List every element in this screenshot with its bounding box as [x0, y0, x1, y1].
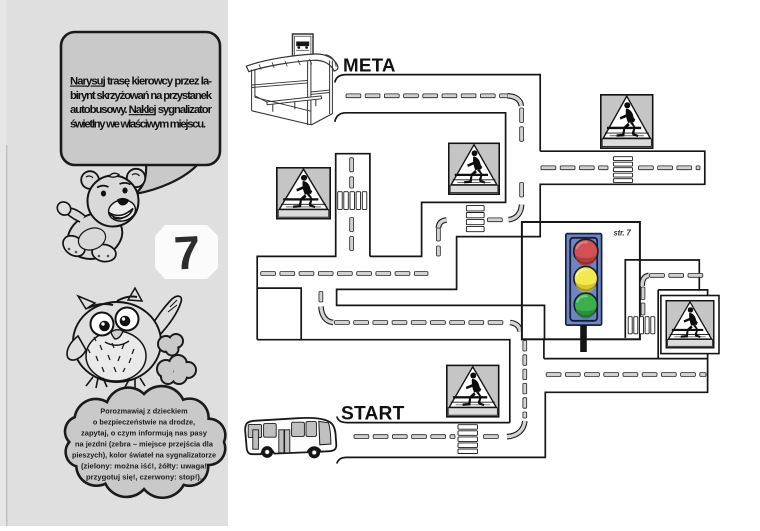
svg-text:birynt skrzyżowań na przystane: birynt skrzyżowań na przystanek — [70, 90, 213, 102]
svg-text:o bezpieczeństwie na drodze,: o bezpieczeństwie na drodze, — [93, 418, 195, 427]
svg-text:na jezdni (zebra – miejsce prz: na jezdni (zebra – miejsce przejścia dla — [75, 440, 214, 449]
svg-text:START: START — [341, 404, 405, 425]
svg-text:przygotuj się!, czerwony: stop: przygotuj się!, czerwony: stop!). — [86, 473, 202, 482]
svg-text:pieszych), kolor świateł na sy: pieszych), kolor świateł na sygnalizator… — [72, 451, 216, 460]
svg-text:7: 7 — [173, 225, 202, 279]
svg-text:świetlny we właściwym miejscu.: świetlny we właściwym miejscu. — [70, 118, 206, 130]
svg-text:zapytaj, o czym informują nas: zapytaj, o czym informują nas pasy — [81, 429, 208, 438]
svg-text:META: META — [343, 55, 396, 76]
svg-text:Porozmawiaj z dzieckiem: Porozmawiaj z dzieckiem — [100, 407, 188, 416]
svg-text:(zielony: można iść!, żółty: u: (zielony: można iść!, żółty: uwaga! — [81, 462, 207, 471]
svg-text:Narysuj trasę kierowcy przez l: Narysuj trasę kierowcy przez la- — [70, 76, 212, 88]
svg-text:autobusowy. Naklej sygnalizato: autobusowy. Naklej sygnalizator — [70, 104, 213, 116]
svg-text:str. 7: str. 7 — [614, 229, 632, 238]
